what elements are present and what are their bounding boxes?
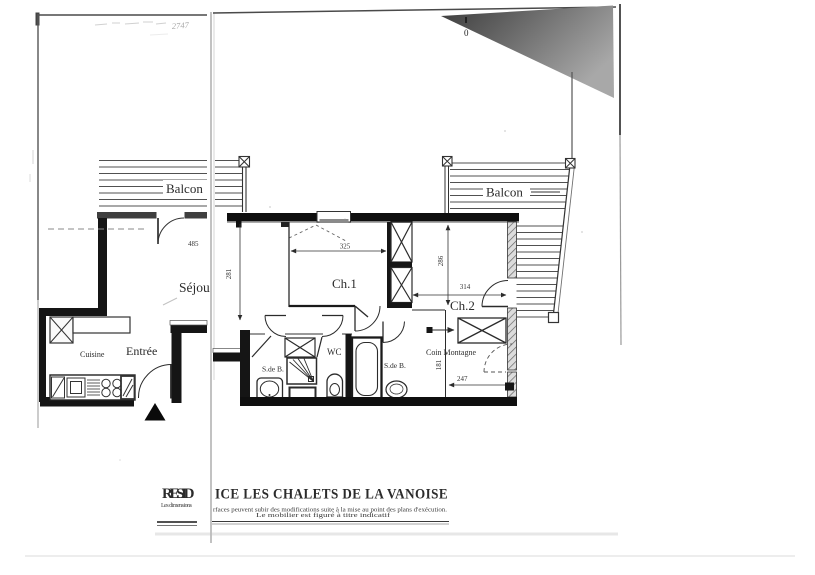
page-right-edge-faint bbox=[620, 135, 621, 345]
toilet bbox=[326, 374, 344, 397]
bunk-furniture bbox=[458, 318, 506, 343]
room-label-entree: Entrée bbox=[126, 344, 157, 358]
wall-tick bbox=[505, 383, 514, 391]
interior-doors bbox=[265, 306, 405, 343]
right-page: 0 bbox=[25, 4, 795, 556]
window-swing-dashed bbox=[289, 225, 346, 241]
door-arc bbox=[138, 365, 171, 399]
room-label-cuisine: Cuisine bbox=[80, 350, 105, 359]
dim-181: 181 bbox=[435, 359, 443, 370]
door-arc bbox=[482, 281, 508, 307]
subtitle-left-fragment: Les dimensions bbox=[161, 503, 193, 509]
shower bbox=[287, 358, 317, 384]
bathtub bbox=[352, 338, 382, 400]
kitchen-counter bbox=[73, 317, 130, 333]
page-seam bbox=[211, 12, 214, 543]
duct-shaft bbox=[50, 317, 73, 343]
title-right-fragment: ICE LES CHALETS DE LA VANOISE bbox=[215, 487, 448, 503]
east-wall-hatched bbox=[505, 222, 517, 397]
chamfer-wall bbox=[317, 337, 322, 357]
wc-east-wall bbox=[346, 334, 352, 398]
door-arc bbox=[158, 218, 184, 244]
entrance-arrow bbox=[145, 403, 166, 421]
zero-mark: 0 bbox=[464, 28, 469, 38]
room-label-sdb2: S.de B. bbox=[384, 361, 406, 370]
floor-plan-svg: 2747 Balcon bbox=[0, 0, 815, 575]
left-page: 2747 Balcon bbox=[30, 13, 215, 429]
room-label-sdb1: S.de B. bbox=[262, 365, 284, 374]
dim-281: 281 bbox=[225, 268, 233, 279]
room-label-ch2: Ch.2 bbox=[450, 298, 475, 313]
balcony-corner-post bbox=[239, 157, 250, 213]
chamfer-wall bbox=[252, 336, 271, 357]
room-label-coin-montagne: Coin Montagne bbox=[426, 348, 476, 357]
arrow-base bbox=[427, 327, 433, 333]
dim-485: 485 bbox=[188, 240, 199, 248]
shelf-unit bbox=[285, 338, 315, 357]
balcony-left-label: Balcon bbox=[166, 181, 203, 196]
room-label-wc: WC bbox=[327, 347, 342, 357]
kitchen-unit bbox=[50, 375, 135, 400]
title-left-fragment: RESID bbox=[162, 486, 195, 502]
dim-247: 247 bbox=[457, 375, 468, 383]
pencil-note: 2747 bbox=[171, 20, 189, 31]
balcony-post-base bbox=[549, 313, 559, 323]
wall-cap bbox=[170, 321, 207, 326]
dim-286: 286 bbox=[437, 255, 445, 266]
balcony-right-label: Balcon bbox=[486, 185, 523, 200]
entrance-door bbox=[138, 364, 171, 399]
scanned-floor-plan-sheet: 2747 Balcon bbox=[0, 0, 815, 575]
room-label-sejour: Séjour bbox=[179, 280, 215, 295]
dim-314: 314 bbox=[460, 283, 471, 291]
dim-325: 325 bbox=[340, 243, 351, 251]
wall-tick bbox=[236, 222, 242, 228]
title-rules bbox=[157, 522, 449, 526]
pencil-scribbles bbox=[95, 22, 168, 35]
window-sill bbox=[320, 219, 349, 223]
room-label-ch1: Ch.1 bbox=[332, 276, 357, 291]
wall-stub bbox=[281, 222, 289, 227]
closet-column bbox=[387, 222, 412, 308]
north-wall bbox=[227, 212, 519, 228]
south-wall bbox=[240, 397, 517, 406]
pencil-dash bbox=[163, 298, 177, 305]
title-block: RESID ICE LES CHALETS DE LA VANOISE Les … bbox=[157, 486, 449, 526]
caption-line2: Le mobilier est figuré à titre indicatif bbox=[256, 512, 390, 519]
ch2-balcony-door bbox=[482, 281, 508, 307]
wall-diagonal bbox=[355, 306, 368, 317]
